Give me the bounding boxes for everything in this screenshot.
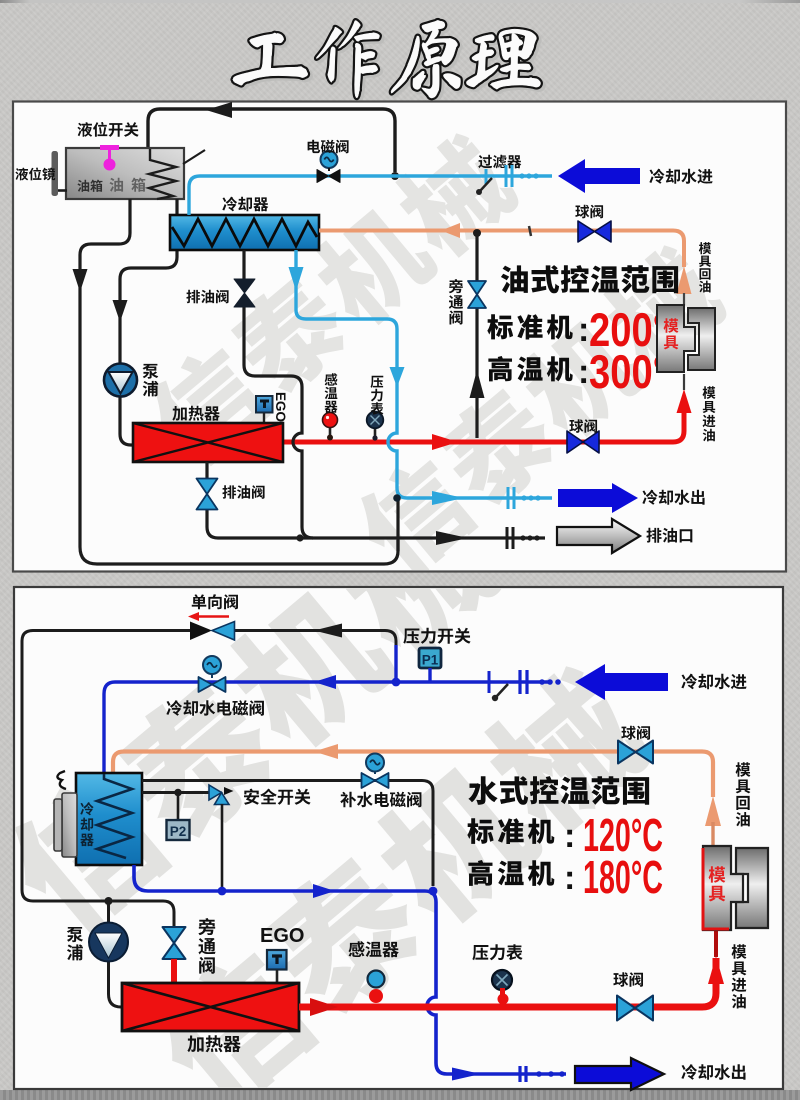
svg-text::: : [578,311,589,349]
svg-text::: : [564,859,575,897]
svg-text:EGO: EGO [273,392,288,422]
svg-text:P1: P1 [422,653,439,668]
svg-text:P2: P2 [170,824,187,839]
svg-text::: : [578,353,589,391]
svg-text:180°C: 180°C [583,851,663,903]
svg-text:EGO: EGO [260,925,304,947]
svg-text::: : [564,817,575,855]
